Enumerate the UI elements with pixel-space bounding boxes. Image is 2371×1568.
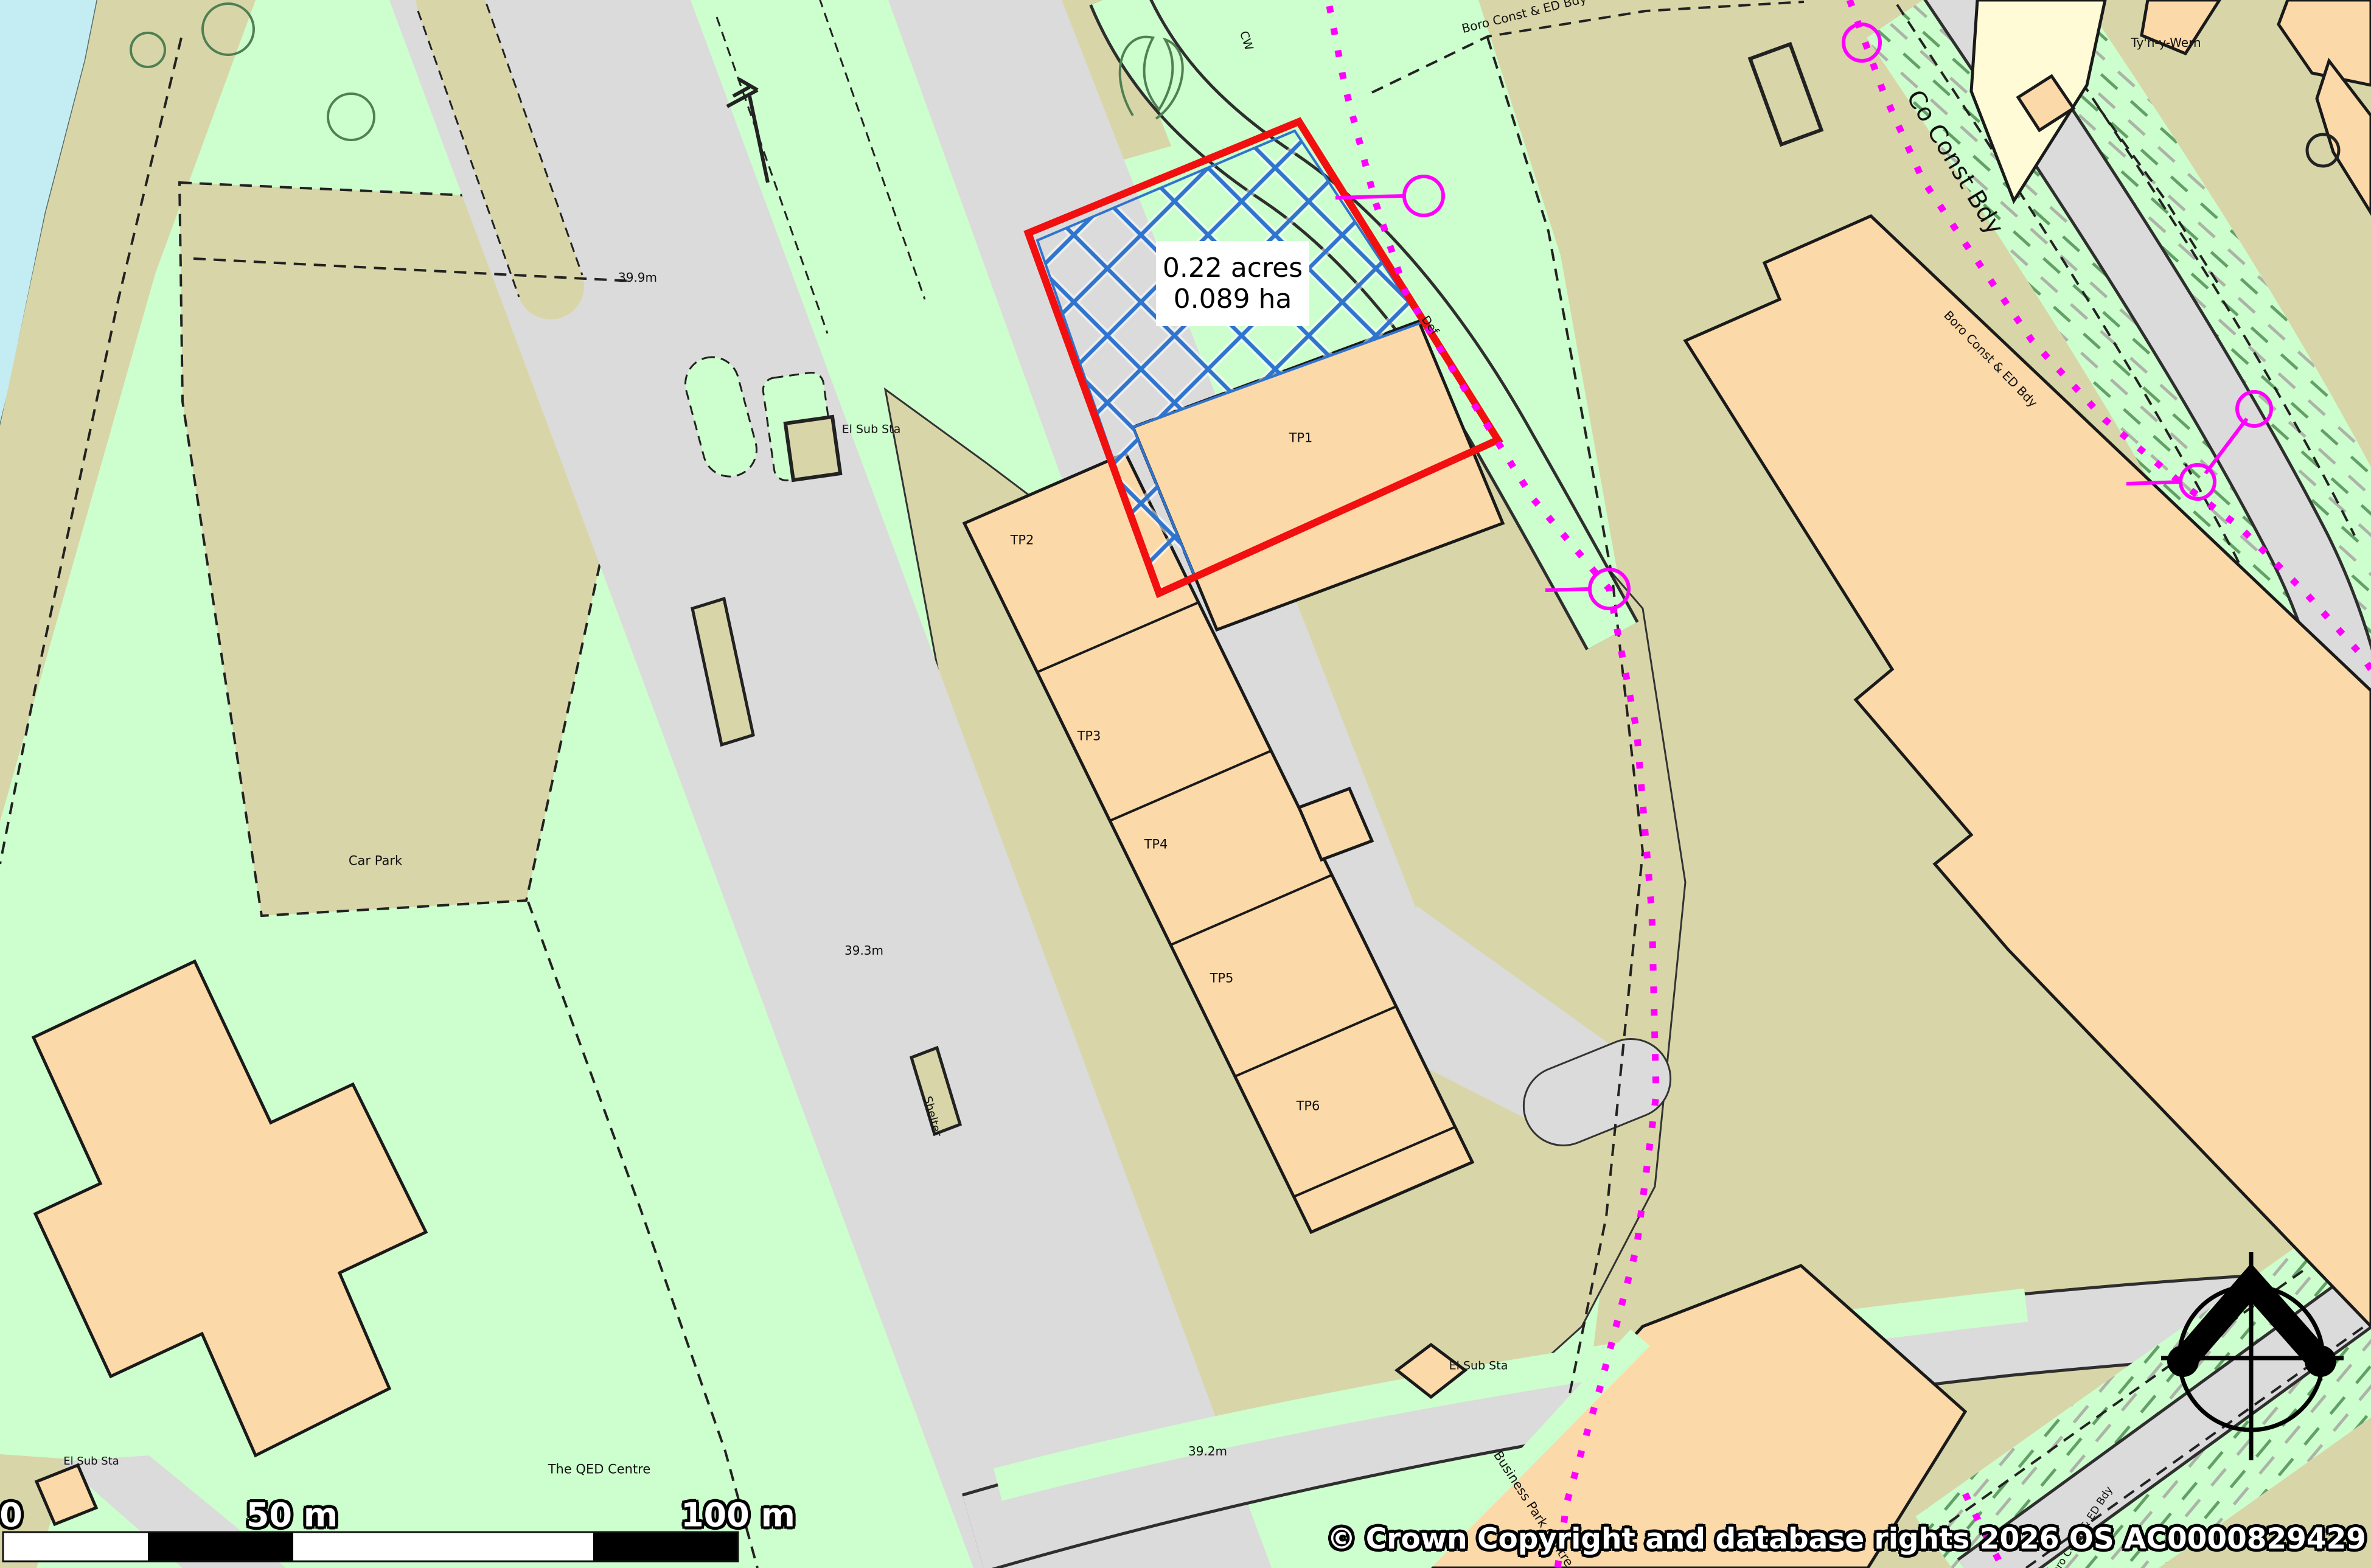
scale-label-100m: 100 m	[681, 1497, 795, 1533]
label-qed-centre: The QED Centre	[548, 1462, 651, 1476]
area-label: 0.22 acres 0.089 ha	[1156, 241, 1309, 326]
label-el-sub-sta-2: El Sub Sta	[1449, 1360, 1508, 1373]
label-tp3: TP3	[1078, 729, 1101, 743]
scale-bar	[3, 1532, 738, 1561]
label-spot-height-399: 39.9m	[618, 271, 657, 284]
map-screenshot: 0.22 acres 0.089 ha TP1 TP2 TP3 TP4 TP5 …	[0, 0, 2371, 1568]
label-el-sub-sta-3: El Sub Sta	[63, 1455, 119, 1468]
label-spot-height-392: 39.2m	[1188, 1444, 1227, 1458]
scale-label-50m: 50 m	[246, 1497, 338, 1533]
label-el-sub-sta-1: El Sub Sta	[842, 423, 901, 436]
label-spot-height-393: 39.3m	[844, 944, 883, 957]
scale-label-0: 0	[0, 1497, 23, 1533]
area-label-acres: 0.22 acres	[1163, 253, 1303, 284]
label-tp2: TP2	[1011, 533, 1034, 547]
label-tp6: TP6	[1297, 1099, 1320, 1113]
label-tp5: TP5	[1210, 971, 1234, 985]
map-canvas	[0, 0, 2371, 1568]
label-car-park: Car Park	[349, 854, 402, 868]
label-tyn-y-wern: Ty'n-y-Wern	[2131, 36, 2201, 49]
area-label-hectares: 0.089 ha	[1174, 284, 1292, 315]
label-tp1: TP1	[1289, 431, 1313, 445]
copyright-notice: © Crown Copyright and database rights 20…	[1327, 1524, 2366, 1555]
label-tp4: TP4	[1144, 837, 1168, 851]
